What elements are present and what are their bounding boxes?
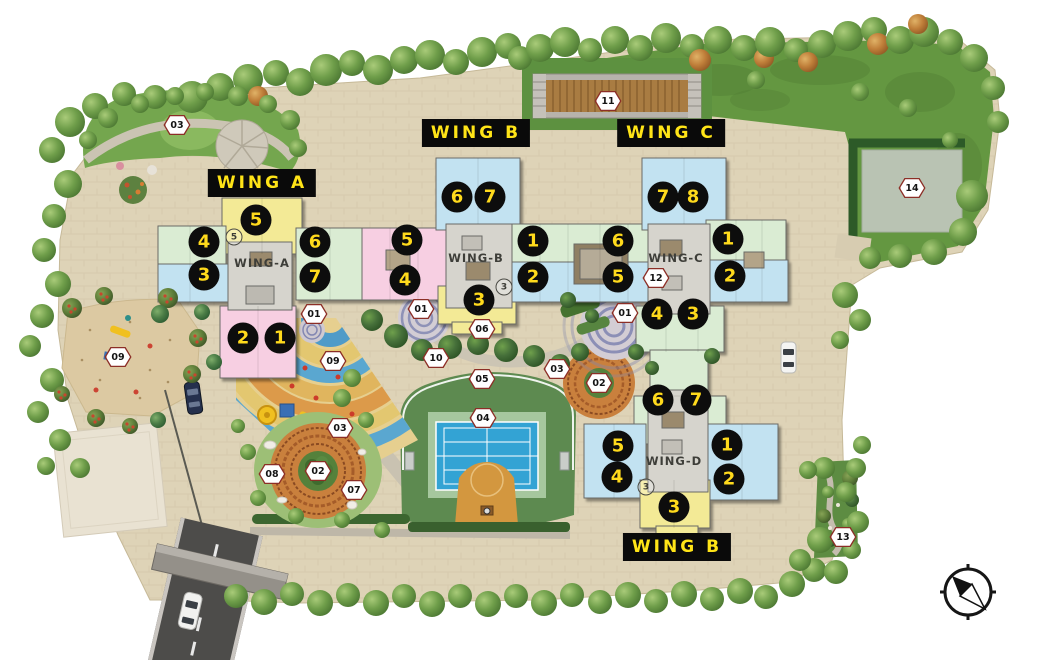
tree bbox=[832, 282, 858, 308]
tree bbox=[419, 591, 445, 617]
tree bbox=[627, 35, 653, 61]
tree bbox=[240, 444, 256, 460]
tree bbox=[45, 271, 71, 297]
wing-a-towers-6-7 bbox=[296, 228, 362, 300]
tree bbox=[704, 348, 720, 364]
tree bbox=[849, 309, 871, 331]
tree bbox=[467, 333, 489, 355]
play-cube bbox=[280, 404, 294, 417]
tree bbox=[843, 541, 861, 559]
tree bbox=[196, 83, 214, 101]
tree bbox=[30, 304, 54, 328]
tree bbox=[194, 304, 210, 320]
tree bbox=[475, 591, 501, 617]
tree bbox=[700, 587, 724, 611]
tree bbox=[411, 339, 433, 361]
tree bbox=[789, 549, 811, 571]
tree bbox=[39, 137, 65, 163]
tree bbox=[645, 361, 659, 375]
tree bbox=[333, 389, 351, 407]
tree bbox=[531, 590, 557, 616]
tree bbox=[54, 386, 70, 402]
tree bbox=[588, 590, 612, 614]
tree bbox=[585, 309, 599, 323]
tree bbox=[921, 239, 947, 265]
tree bbox=[150, 412, 166, 428]
tree bbox=[79, 131, 97, 149]
tree bbox=[307, 590, 333, 616]
tree bbox=[467, 37, 497, 67]
tree bbox=[836, 482, 856, 502]
tree bbox=[888, 244, 912, 268]
tree bbox=[310, 54, 342, 86]
ring-garden bbox=[254, 412, 382, 528]
tree bbox=[288, 508, 304, 524]
tree bbox=[280, 582, 304, 606]
tree bbox=[494, 338, 518, 362]
tree bbox=[550, 27, 580, 57]
flower-dot bbox=[127, 428, 130, 431]
tree bbox=[560, 292, 576, 308]
flower-dot bbox=[91, 414, 94, 417]
tree bbox=[250, 490, 266, 506]
flower-dot bbox=[63, 393, 66, 396]
tree bbox=[615, 582, 641, 608]
tree bbox=[363, 590, 389, 616]
tree bbox=[779, 571, 805, 597]
tree bbox=[807, 527, 833, 553]
tree bbox=[949, 218, 977, 246]
tree bbox=[339, 50, 365, 76]
site-plan-canvas bbox=[0, 0, 1039, 660]
flower-dot bbox=[195, 340, 198, 343]
tree bbox=[942, 132, 958, 148]
tree bbox=[206, 354, 222, 370]
pergola bbox=[522, 58, 712, 130]
tree bbox=[189, 329, 207, 347]
tree bbox=[286, 68, 314, 96]
tree bbox=[49, 429, 71, 451]
tree bbox=[798, 52, 818, 72]
tree bbox=[336, 583, 360, 607]
sand-play-area bbox=[62, 299, 200, 416]
tree bbox=[727, 578, 753, 604]
tree bbox=[415, 40, 445, 70]
tree bbox=[438, 335, 462, 359]
tree bbox=[231, 419, 245, 433]
tree bbox=[343, 369, 361, 387]
flower-dot bbox=[67, 304, 70, 307]
tree bbox=[37, 457, 55, 475]
tree bbox=[851, 83, 869, 101]
flower-dot bbox=[187, 370, 190, 373]
tree bbox=[550, 354, 570, 374]
tree bbox=[131, 95, 149, 113]
tree bbox=[87, 409, 105, 427]
tree bbox=[644, 589, 668, 613]
flower-dot bbox=[97, 417, 100, 420]
tree bbox=[122, 418, 138, 434]
tree bbox=[908, 14, 928, 34]
flower-dot bbox=[169, 297, 172, 300]
tree bbox=[755, 27, 785, 57]
tree bbox=[166, 87, 184, 105]
tree bbox=[98, 108, 118, 128]
tree bbox=[824, 560, 848, 584]
tree bbox=[392, 584, 416, 608]
flower-dot bbox=[125, 422, 128, 425]
tree bbox=[228, 86, 248, 106]
tree bbox=[358, 412, 374, 428]
tree bbox=[853, 436, 871, 454]
tree bbox=[578, 38, 602, 62]
tree bbox=[19, 335, 41, 357]
tree bbox=[831, 331, 849, 349]
flower-dot bbox=[57, 390, 60, 393]
tree bbox=[846, 458, 866, 478]
tree bbox=[384, 324, 408, 348]
tree bbox=[361, 309, 383, 331]
tree bbox=[960, 44, 988, 72]
compass bbox=[940, 564, 996, 620]
tree bbox=[956, 180, 988, 212]
goal-post bbox=[405, 452, 414, 470]
tree bbox=[987, 111, 1009, 133]
flower-dot bbox=[199, 337, 202, 340]
tree bbox=[799, 461, 817, 479]
tree bbox=[523, 345, 545, 367]
wing-d-towers-5-4 bbox=[584, 424, 646, 498]
flower-dot bbox=[193, 373, 196, 376]
tree bbox=[689, 49, 711, 71]
tree bbox=[443, 49, 469, 75]
flower-dot bbox=[99, 292, 102, 295]
tree bbox=[671, 581, 697, 607]
tree bbox=[55, 107, 85, 137]
tree bbox=[651, 23, 681, 53]
tree bbox=[334, 512, 350, 528]
tree bbox=[981, 76, 1005, 100]
tree bbox=[448, 584, 472, 608]
tree bbox=[526, 34, 554, 62]
tree bbox=[754, 585, 778, 609]
tree bbox=[390, 46, 418, 74]
wing-c-core bbox=[648, 224, 710, 314]
tree bbox=[867, 33, 889, 55]
tree bbox=[504, 584, 528, 608]
tree bbox=[747, 71, 765, 89]
tree bbox=[151, 305, 169, 323]
tree bbox=[374, 522, 390, 538]
tree bbox=[560, 583, 584, 607]
flower-dot bbox=[69, 310, 72, 313]
tree bbox=[224, 584, 248, 608]
tree bbox=[70, 458, 90, 478]
goal-post bbox=[560, 452, 569, 470]
flower-dot bbox=[73, 307, 76, 310]
flower-dot bbox=[165, 300, 168, 303]
tree bbox=[183, 365, 201, 383]
flower-dot bbox=[193, 334, 196, 337]
tree bbox=[571, 343, 589, 361]
tree bbox=[251, 589, 277, 615]
flower-dot bbox=[93, 420, 96, 423]
tree bbox=[859, 247, 881, 269]
tree bbox=[937, 29, 963, 55]
tree bbox=[27, 401, 49, 423]
tree bbox=[601, 26, 629, 54]
tree bbox=[95, 287, 113, 305]
tree bbox=[280, 110, 300, 130]
tree bbox=[158, 288, 178, 308]
flower-dot bbox=[131, 425, 134, 428]
flower-dot bbox=[59, 396, 62, 399]
tree bbox=[628, 344, 644, 360]
tree bbox=[899, 99, 917, 117]
multipurpose-court-14 bbox=[862, 150, 962, 232]
parked-car-white bbox=[781, 342, 796, 373]
flower-dot bbox=[101, 298, 104, 301]
tree bbox=[704, 26, 732, 54]
tree bbox=[833, 21, 863, 51]
wing-d-towers-1-2 bbox=[708, 424, 778, 500]
site-plan: WING AWING BWING CWING B WING-AWING-BWIN… bbox=[0, 0, 1039, 660]
tree bbox=[363, 55, 393, 85]
tree bbox=[42, 204, 66, 228]
tree bbox=[54, 170, 82, 198]
tree bbox=[289, 139, 307, 157]
tree bbox=[62, 298, 82, 318]
tree bbox=[32, 238, 56, 262]
tree bbox=[259, 95, 277, 113]
tree bbox=[263, 60, 289, 86]
flower-dot bbox=[189, 376, 192, 379]
flower-dot bbox=[105, 295, 108, 298]
tree bbox=[731, 35, 757, 61]
flower-dot bbox=[163, 294, 166, 297]
tree bbox=[847, 511, 869, 533]
wing-a-tower-4 bbox=[158, 226, 226, 264]
